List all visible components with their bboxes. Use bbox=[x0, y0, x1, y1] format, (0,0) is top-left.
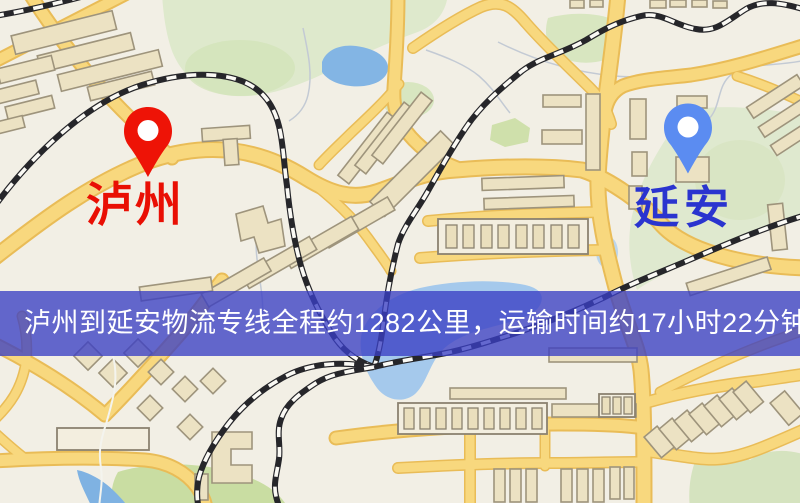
destination-label: 延安 bbox=[634, 171, 734, 236]
route-banner: 泸州到延安物流专线全程约1282公里，运输时间约17小时22分钟. bbox=[0, 291, 800, 356]
destination-pin-icon[interactable] bbox=[663, 102, 713, 175]
origin-label: 泸州 bbox=[86, 166, 184, 235]
map-svg bbox=[0, 0, 800, 503]
route-banner-text: 泸州到延安物流专线全程约1282公里，运输时间约17小时22分钟. bbox=[24, 308, 800, 338]
map-container: 泸州 延安 泸州到延安物流专线全程约1282公里，运输时间约17小时22分钟. bbox=[0, 0, 800, 503]
